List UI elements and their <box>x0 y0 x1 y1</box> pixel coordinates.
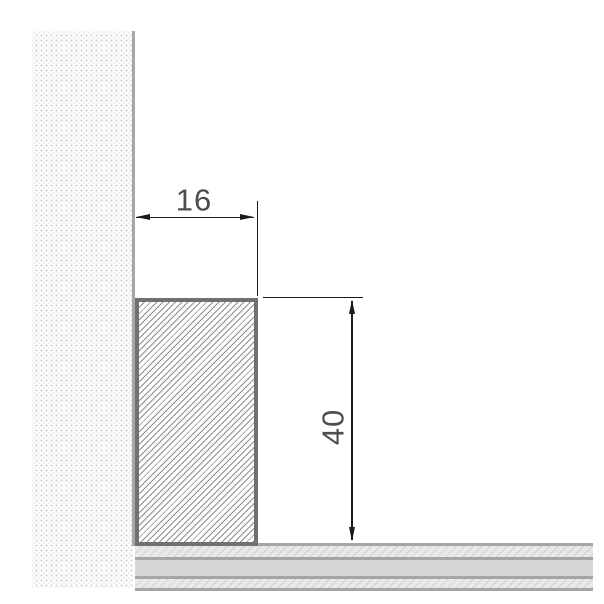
floor-lower-hatch-layer <box>135 579 593 588</box>
width-dimension-label: 16 <box>176 185 212 216</box>
drawing-canvas: 16 40 <box>0 0 604 604</box>
arrow-left-icon <box>136 214 150 220</box>
arrow-right-icon <box>240 214 254 220</box>
height-dimension-line <box>351 301 352 540</box>
arrow-up-icon <box>349 300 355 314</box>
wall-stipple-texture <box>32 31 133 588</box>
profile-cross-section <box>135 298 258 546</box>
floor-bottom-edge-line <box>135 588 593 591</box>
height-extension-line <box>263 297 363 298</box>
height-dimension-label: 40 <box>318 409 349 445</box>
floor-section <box>135 543 593 591</box>
arrow-down-icon <box>349 527 355 541</box>
floor-upper-hatch-layer <box>135 546 593 557</box>
width-extension-line <box>257 201 258 296</box>
floor-solid-layer <box>135 560 593 576</box>
